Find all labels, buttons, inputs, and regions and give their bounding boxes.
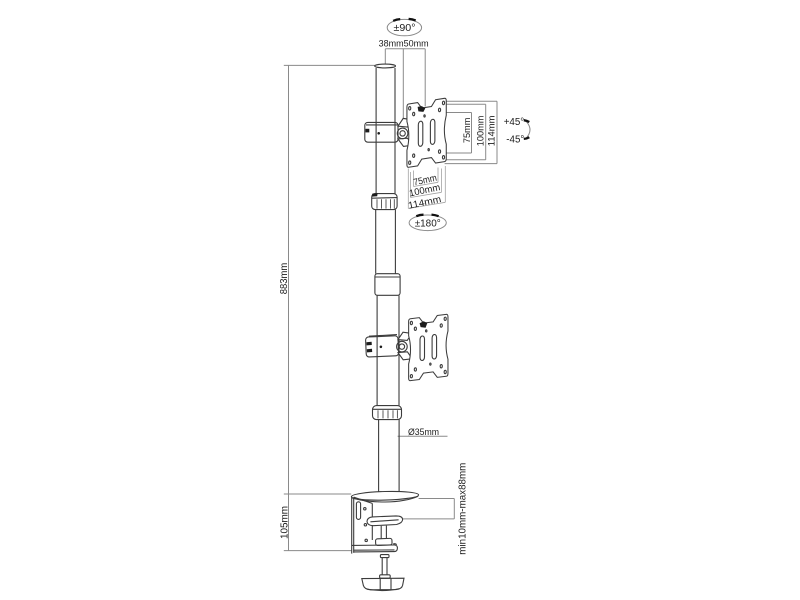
svg-text:+45°: +45° xyxy=(504,117,525,128)
svg-text:-45°: -45° xyxy=(506,134,524,145)
svg-text:±180°: ±180° xyxy=(415,217,441,229)
svg-text:114mm: 114mm xyxy=(487,115,498,146)
svg-text:100mm: 100mm xyxy=(475,115,486,146)
svg-text:±90°: ±90° xyxy=(394,22,416,34)
svg-text:75mm: 75mm xyxy=(462,118,473,144)
svg-text:105mm: 105mm xyxy=(279,506,290,539)
svg-text:38mm50mm: 38mm50mm xyxy=(379,38,429,49)
svg-text:min10mm-max88mm: min10mm-max88mm xyxy=(457,463,468,555)
svg-text:Ø35mm: Ø35mm xyxy=(408,427,439,438)
svg-text:883mm: 883mm xyxy=(279,263,290,295)
